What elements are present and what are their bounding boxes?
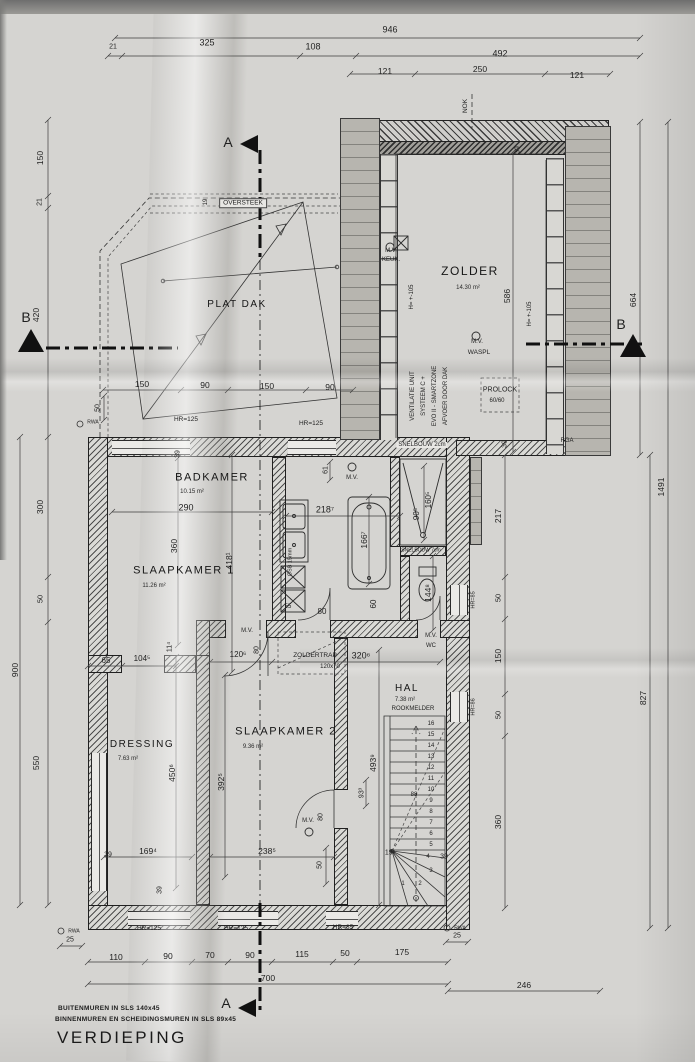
section-marker-b-left (18, 329, 44, 352)
label-zoldertrap: ZOLDERTRAP (293, 653, 337, 660)
dim-121-a: 121 (378, 67, 392, 76)
dim-120: 120⁶ (230, 651, 247, 659)
room-dressing-area: 7.63 m² (118, 756, 138, 762)
room-badkamer: BADKAMER (175, 473, 249, 484)
room-zolder: ZOLDER (441, 265, 499, 277)
dim-39-sk1: 39 (175, 450, 182, 458)
dim-39-dressing-a: 39 (104, 852, 112, 859)
dim-50-left: 50 (36, 595, 44, 603)
room-dressing: DRESSING (110, 740, 174, 750)
dim-90-b: 90 (245, 951, 254, 960)
dim-160-douche: 160⁵ (425, 492, 433, 509)
label-h105-left: H= +-105 (409, 284, 415, 309)
note-interior-walls: BINNENMUREN EN SCHEIDINGSMUREN IN SLS 89… (55, 1016, 236, 1023)
dim-50-bottom: 50 (340, 949, 349, 958)
dim-320: 320⁶ (352, 652, 371, 661)
room-slaapkamer-1-area: 11.26 m² (142, 583, 165, 589)
label-mv-waspl-2: WASPL (468, 350, 491, 357)
dim-492: 492 (492, 50, 507, 59)
dim-450: 450⁶ (168, 764, 177, 782)
dim-88: 88 (411, 792, 418, 798)
shower (400, 459, 446, 545)
plat-dak-roof-plane (121, 202, 337, 419)
label-rwa-2: RWA (68, 930, 79, 935)
label-rwa-1: RWA (87, 421, 98, 426)
dim-166-bad: 166⁷ (360, 531, 369, 548)
dim-150-pd-a: 150 (135, 380, 149, 389)
dim-250: 250 (473, 65, 487, 74)
label-zoldertrap-size: 120x70 (320, 664, 340, 670)
dim-175: 175 (395, 948, 409, 957)
dim-80-badkamer: 80 (318, 608, 327, 616)
dim-325: 325 (199, 39, 214, 48)
stair-step-13: 13 (428, 754, 435, 760)
dim-144-wc: 144⁸ (424, 584, 433, 602)
label-mv-keuk-1: M.V. (385, 248, 397, 254)
stair-step-11: 11 (428, 776, 434, 782)
label-mv-sk1: M.V. (241, 628, 253, 634)
stair-step-16: 16 (428, 721, 435, 727)
label-snelbouw-7cm: SNELBOUW 7cm (401, 549, 440, 554)
plan-linework (0, 0, 695, 1062)
dim-150-pd-b: 150 (260, 382, 274, 391)
plat-dak-outline (100, 198, 340, 437)
label-hr86-hal: HR=86 (471, 698, 477, 715)
stair-step-15: 15 (428, 732, 435, 738)
dim-392: 392⁵ (217, 773, 226, 791)
note-exterior-walls: BUITENMUREN IN SLS 140x45 (58, 1005, 160, 1012)
fan-icon (305, 243, 480, 836)
dim-93: 93³ (359, 788, 366, 798)
dim-586: 586 (503, 289, 512, 303)
label-ventilatie-4: AFVOER DOOR DAK (443, 367, 449, 425)
dim-121-b: 121 (570, 71, 584, 80)
dim-39-trap: 39 (440, 854, 448, 861)
dim-80-sk2: 80 (318, 813, 325, 821)
dim-21-top: 21 (109, 44, 117, 51)
stair-step-14: 14 (428, 743, 435, 749)
stair-step-6: 6 (429, 831, 432, 837)
label-mv-sk2: M.V. (302, 818, 314, 824)
stair-step-5: 5 (429, 842, 432, 848)
dim-493: 493⁹ (369, 754, 378, 772)
dim-21-left: 21 (37, 198, 44, 206)
label-mv-keuk-2: KEUK. (382, 257, 400, 263)
room-badkamer-area: 10.15 m² (180, 489, 204, 495)
dim-700: 700 (261, 974, 275, 983)
plat-dak-outline-inner (108, 206, 340, 437)
label-section-b-right: B (616, 317, 625, 331)
stair-step-3: 3 (429, 868, 432, 874)
dim-300-left: 300 (36, 500, 45, 514)
dim-55: 55 (285, 604, 292, 610)
label-prolock-size: 60/60 (489, 398, 504, 404)
label-hr125-a: HR=125 (174, 417, 198, 424)
label-snelbouw-2cm: SNELBOUW 2cm (396, 442, 447, 448)
dim-360-sk1: 360 (170, 539, 179, 553)
dim-19-oversteek: 19 (203, 199, 209, 206)
floor-plan-photo: BUITENMUREN IN SLS 140x45 BINNENMUREN EN… (0, 0, 695, 1062)
stair-step-7: 7 (429, 820, 432, 826)
label-rookmelder: ROOKMELDER (392, 706, 435, 712)
dim-61: 61 (323, 466, 330, 474)
label-mv-wc-1: M.V. (425, 633, 437, 639)
dim-360-right: 360 (494, 815, 503, 829)
dim-80-sk1: 80 (254, 646, 261, 654)
label-ventilatie-2: SYSTEEM C + (421, 376, 427, 416)
dim-50-pd: 50 (95, 404, 102, 412)
dim-900-left: 900 (11, 663, 20, 677)
room-slaapkamer-2-area: 9.36 m² (243, 744, 263, 750)
staircase (384, 716, 445, 906)
dim-550-left: 550 (32, 756, 41, 770)
label-rwa-3: RWA (454, 927, 465, 932)
label-hr85-right: HR=85 (471, 591, 477, 608)
dim-238: 238⁵ (258, 847, 276, 856)
label-section-a-bottom: A (221, 996, 230, 1010)
room-zolder-area: 14.30 m² (456, 285, 480, 291)
dim-1491: 1491 (657, 478, 666, 497)
dim-90-a: 90 (163, 952, 172, 961)
label-ventilatie-1: VENTILATIE UNIT (410, 371, 416, 421)
dim-104: 104⁵ (134, 655, 151, 663)
label-mv-waspl-1: M.V. (471, 339, 483, 345)
dim-90-douche: 90⁵ (413, 508, 421, 520)
label-section-b-left: B (21, 310, 30, 324)
dim-90-pd-b: 90 (325, 383, 334, 392)
stair-step-10: 10 (428, 787, 435, 793)
label-osb: OSB 15mm (288, 548, 294, 576)
dim-25-right: 25 (453, 933, 461, 940)
dim-50-right-a: 50 (494, 594, 502, 602)
dim-664: 664 (629, 293, 638, 307)
label-hr125-b: HR=125 (299, 421, 323, 428)
dim-246: 246 (517, 981, 531, 990)
stair-step-1: 1 (401, 881, 404, 887)
room-slaapkamer-2: SLAAPKAMER 2 (235, 727, 337, 738)
label-mv-badkamer: M.V. (346, 475, 358, 481)
stair-step-9: 9 (429, 798, 432, 804)
label-prolock: PROLOCK (483, 387, 517, 394)
section-marker-a-top (240, 135, 258, 153)
dim-39-zolder-top: 39 (515, 146, 522, 154)
slope-arrow (196, 224, 286, 345)
section-marker-a-bottom (238, 999, 256, 1017)
label-hr85-bottom: HR=85 (333, 925, 353, 932)
dim-290: 290 (178, 504, 193, 513)
room-hal-area: 7.38 m² (395, 697, 415, 703)
label-ventilatie-3: EVO II - SMARTZONE (432, 366, 438, 427)
dim-827: 827 (639, 691, 648, 705)
stair-step-4: 4 (426, 854, 429, 860)
washbasin (280, 500, 308, 562)
room-plat-dak: PLAT DAK (207, 300, 266, 310)
dim-60-badkamer: 60 (370, 600, 378, 609)
dim-115: 115 (295, 950, 309, 959)
dim-218: 218⁷ (316, 506, 334, 515)
label-nok: NOK (463, 99, 470, 113)
dim-19-trap: 19⁷ (385, 850, 395, 857)
label-hr125-d: HR=125 (224, 926, 248, 933)
label-section-a-top: A (223, 135, 232, 149)
dim-70: 70 (205, 951, 214, 960)
dim-420-left: 420 (32, 308, 41, 322)
dim-39-dressing-b: 39 (157, 886, 164, 894)
stair-step-12: 12 (428, 765, 435, 771)
label-rga: RGA (560, 438, 573, 444)
dim-90-pd-a: 90 (200, 381, 209, 390)
dim-946: 946 (382, 26, 397, 35)
dim-110: 110 (109, 953, 123, 962)
room-slaapkamer-1: SLAAPKAMER 1 (133, 566, 235, 577)
dim-11: 11⁴ (167, 642, 174, 652)
dim-65: 65 (102, 657, 111, 665)
dim-217: 217 (494, 509, 503, 523)
dim-169: 169⁴ (139, 847, 157, 856)
dim-25-left: 25 (66, 937, 74, 944)
label-h105-right: H= +-105 (527, 301, 533, 326)
label-hr125-c: HR=125 (137, 926, 161, 933)
dim-150-right: 150 (494, 649, 503, 663)
dim-50-sk2-deur: 50 (317, 861, 324, 869)
dim-50-right-b: 50 (494, 711, 502, 719)
section-line-b (46, 344, 642, 348)
dim-150-left: 150 (36, 151, 45, 165)
plan-title: VERDIEPING (57, 1028, 187, 1048)
stair-step-8: 8 (429, 809, 432, 815)
dim-39-zolder-bot: 39 (502, 440, 509, 448)
room-hal: HAL (395, 684, 419, 694)
stair-walk-line (412, 726, 420, 902)
label-oversteek: OVERSTEEK (219, 198, 267, 208)
dim-108: 108 (305, 43, 320, 52)
label-mv-wc-2: WC (426, 643, 436, 649)
stair-step-2: 2 (418, 881, 421, 887)
